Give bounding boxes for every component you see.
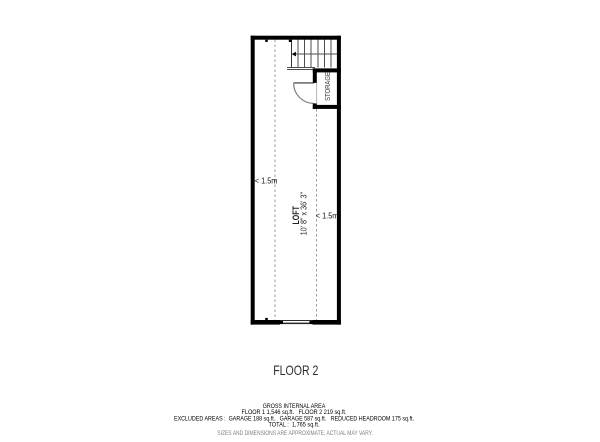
svg-text:FLOOR 2: FLOOR 2 <box>273 362 318 378</box>
svg-text:< 1.5m: < 1.5m <box>316 211 339 220</box>
svg-text:< 1.5m: < 1.5m <box>255 177 278 186</box>
svg-text:STORAGE: STORAGE <box>325 72 332 101</box>
svg-text:TOTAL : 1,765 sq.ft.: TOTAL : 1,765 sq.ft. <box>269 422 320 429</box>
svg-text:10' 8" x 36' 3": 10' 8" x 36' 3" <box>299 192 308 236</box>
svg-text:SIZES AND DIMENSIONS ARE APPRO: SIZES AND DIMENSIONS ARE APPROXIMATE, AC… <box>217 430 373 437</box>
